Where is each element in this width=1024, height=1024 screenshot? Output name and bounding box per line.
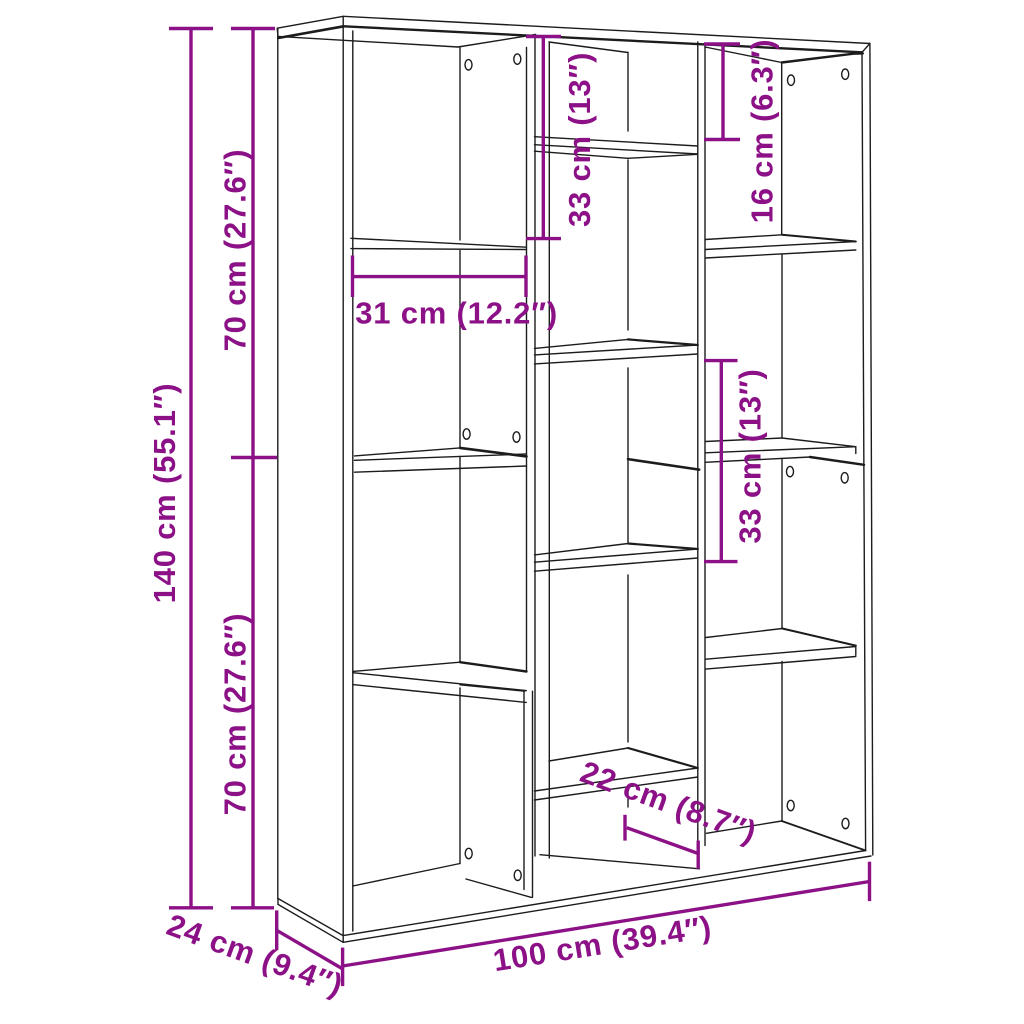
svg-text:140 cm (55.1″): 140 cm (55.1″) <box>147 383 182 604</box>
svg-text:16 cm (6.3″): 16 cm (6.3″) <box>745 39 780 224</box>
svg-text:33 cm (13″): 33 cm (13″) <box>562 52 597 227</box>
svg-text:70 cm (27.6″): 70 cm (27.6″) <box>218 613 253 816</box>
svg-text:70 cm (27.6″): 70 cm (27.6″) <box>218 149 253 352</box>
svg-text:33 cm (13″): 33 cm (13″) <box>733 368 768 543</box>
svg-text:31 cm (12.2″): 31 cm (12.2″) <box>355 295 558 330</box>
